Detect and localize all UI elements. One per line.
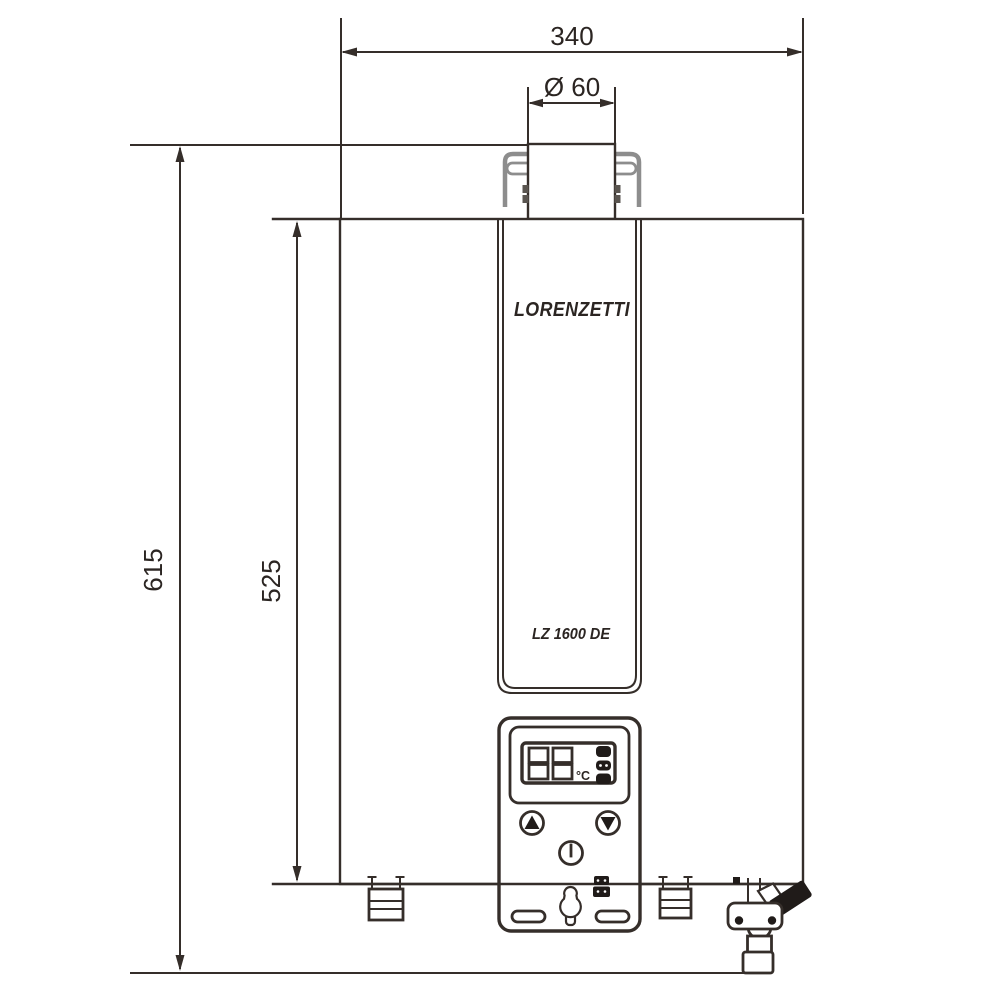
flue-pipe (523, 144, 621, 219)
temp-up-button[interactable] (521, 812, 544, 835)
valve-tab (733, 877, 740, 884)
dim-flue-label: Ø 60 (544, 72, 600, 102)
flue-tab (523, 185, 529, 193)
dim-cabinet-height-label: 525 (256, 559, 286, 602)
diagram-canvas: 340 Ø 60 615 525 (0, 0, 1000, 1000)
dim-flue-diameter: Ø 60 (528, 72, 615, 107)
flue-tab (615, 195, 621, 203)
model-label: LZ 1600 DE (532, 626, 611, 643)
flue-tab (523, 195, 529, 203)
arrow-down-icon (293, 866, 302, 882)
arrow-down-icon (176, 955, 185, 971)
dim-width: 340 (341, 21, 803, 57)
flue-tab (615, 185, 621, 193)
arrow-up-icon (176, 146, 185, 162)
water-heater-dimension-diagram: 340 Ø 60 615 525 (0, 0, 1000, 1000)
dim-cabinet-height: 525 (256, 221, 301, 882)
valve-body (728, 903, 782, 929)
arrow-up-icon (293, 221, 302, 237)
electrical-connector (593, 876, 610, 897)
display-celsius-label: °C (576, 769, 590, 783)
valve-inlet-block (743, 952, 773, 973)
arrow-left-icon (528, 99, 543, 107)
brand-logo: LORENZETTI (514, 298, 631, 321)
power-button[interactable] (560, 842, 583, 865)
valve-screw (768, 916, 776, 924)
arrow-right-icon (787, 48, 803, 57)
arrow-right-icon (600, 99, 615, 107)
display-indicator-pills (596, 746, 611, 785)
dim-overall-height: 615 (138, 146, 184, 971)
dim-overall-height-label: 615 (138, 548, 168, 591)
valve-pipe (748, 936, 772, 953)
temp-down-button[interactable] (597, 812, 620, 835)
valve-screw (735, 916, 743, 924)
arrow-left-icon (341, 48, 357, 57)
gas-valve (728, 877, 813, 973)
dim-width-label: 340 (550, 21, 593, 51)
